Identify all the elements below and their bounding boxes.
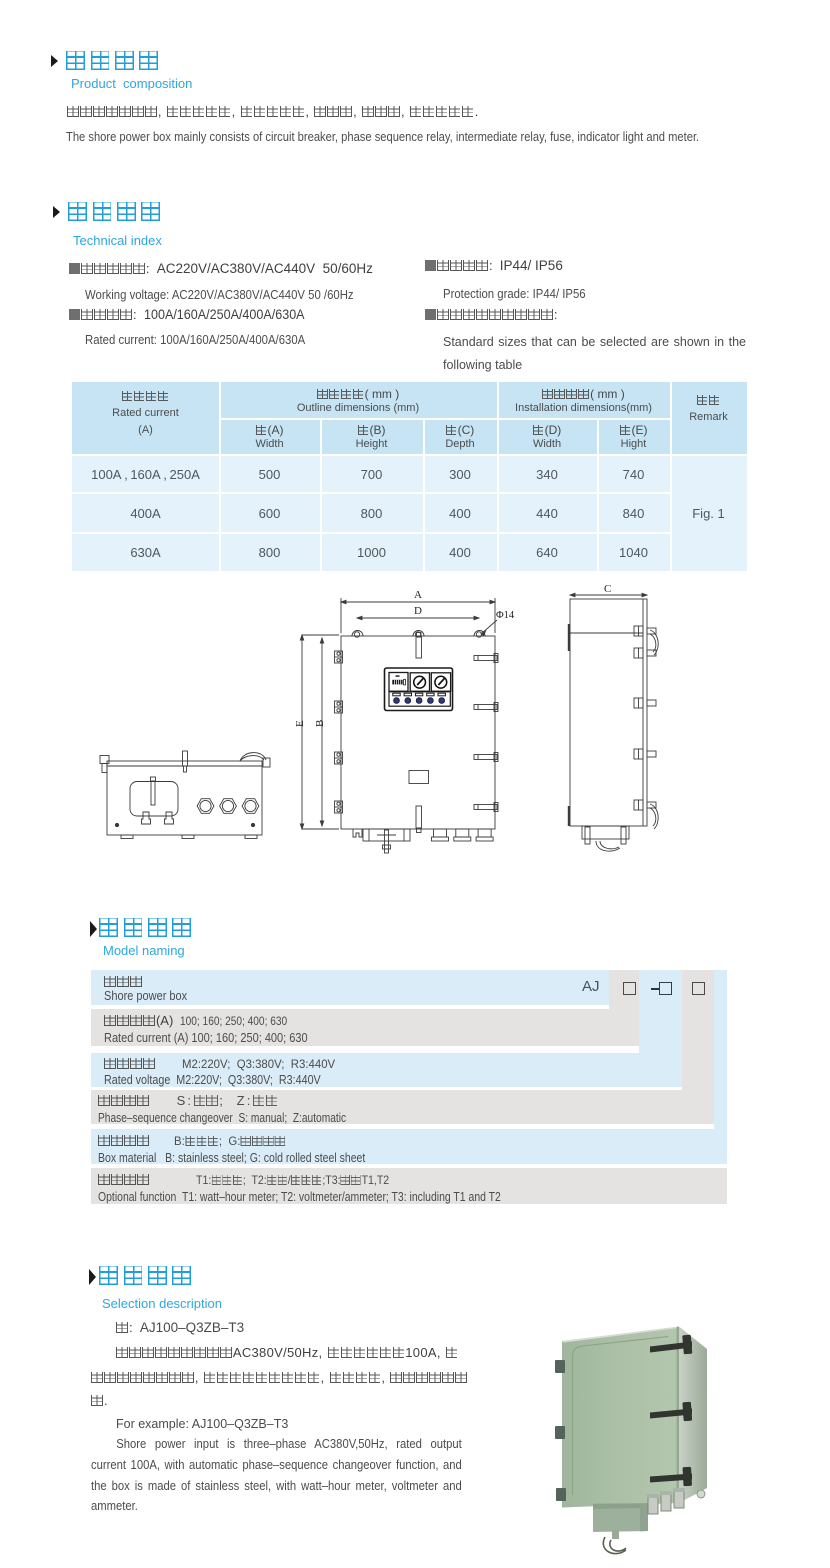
svg-text:C: C: [604, 585, 611, 595]
svg-text:E: E: [294, 720, 306, 727]
svg-text:D: D: [414, 605, 422, 617]
svg-text:Φ14: Φ14: [496, 610, 515, 621]
svg-text:A: A: [414, 589, 422, 601]
svg-text:B: B: [314, 720, 326, 727]
